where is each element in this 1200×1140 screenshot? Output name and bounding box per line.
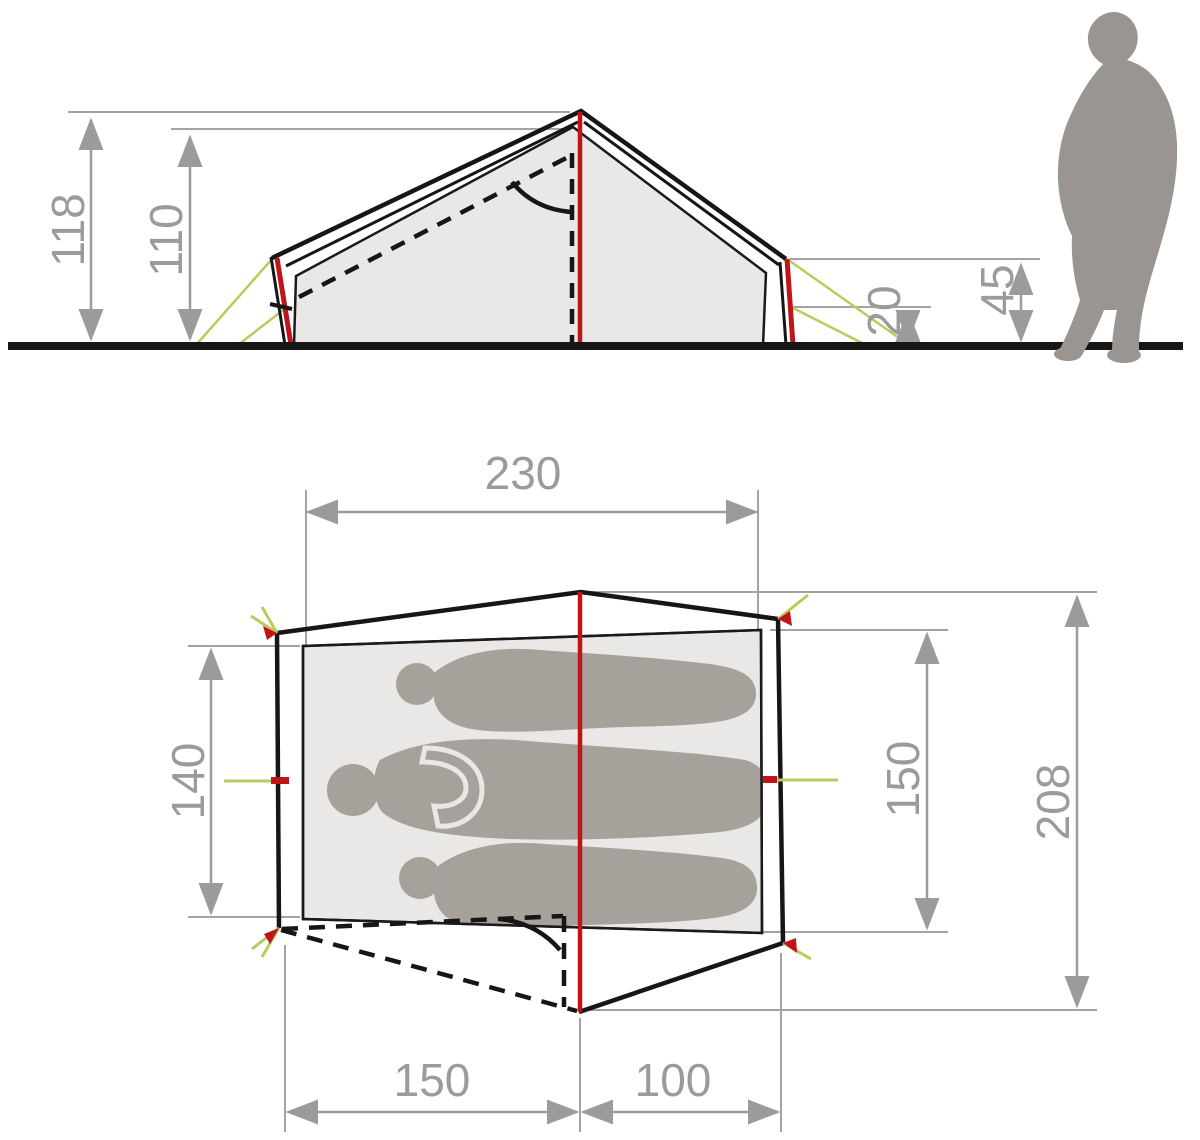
side-view: 118 110 20 45 (8, 12, 1183, 363)
dim-label-side-wall-height: 20 (858, 285, 910, 336)
dim-label-inner-height: 110 (140, 203, 192, 276)
diagram-canvas: 118 110 20 45 (0, 0, 1200, 1140)
dimension-118: 118 (42, 120, 94, 339)
standing-person-silhouette (1054, 12, 1177, 363)
top-view: 230 140 150 208 150 100 (162, 447, 1097, 1132)
dim-label-inner-width-left: 140 (162, 743, 214, 820)
dimension-140: 140 (162, 650, 214, 913)
dimension-208: 208 (1027, 597, 1079, 1006)
inner-tent-profile (294, 127, 766, 346)
dim-label-peak-height: 118 (42, 193, 94, 266)
dimension-45: 45 (971, 264, 1023, 340)
dimension-20: 20 (858, 285, 910, 340)
dim-label-outer-length: 208 (1027, 764, 1079, 841)
dimension-150-right: 150 (877, 634, 929, 928)
dim-label-floor-depth: 150 (394, 1054, 471, 1106)
dim-label-inner-length: 230 (485, 447, 562, 499)
tent-dimensions-diagram: 118 110 20 45 (0, 0, 1200, 1140)
dim-label-inner-width-right: 150 (877, 741, 929, 818)
dimension-230: 230 (308, 447, 756, 512)
dimension-150-bottom: 150 (288, 1054, 577, 1112)
dimension-100-bottom: 100 (583, 1054, 778, 1112)
dim-label-vestibule-depth: 100 (635, 1054, 712, 1106)
dim-label-vent-height: 45 (971, 264, 1023, 315)
dimension-110: 110 (140, 137, 192, 339)
